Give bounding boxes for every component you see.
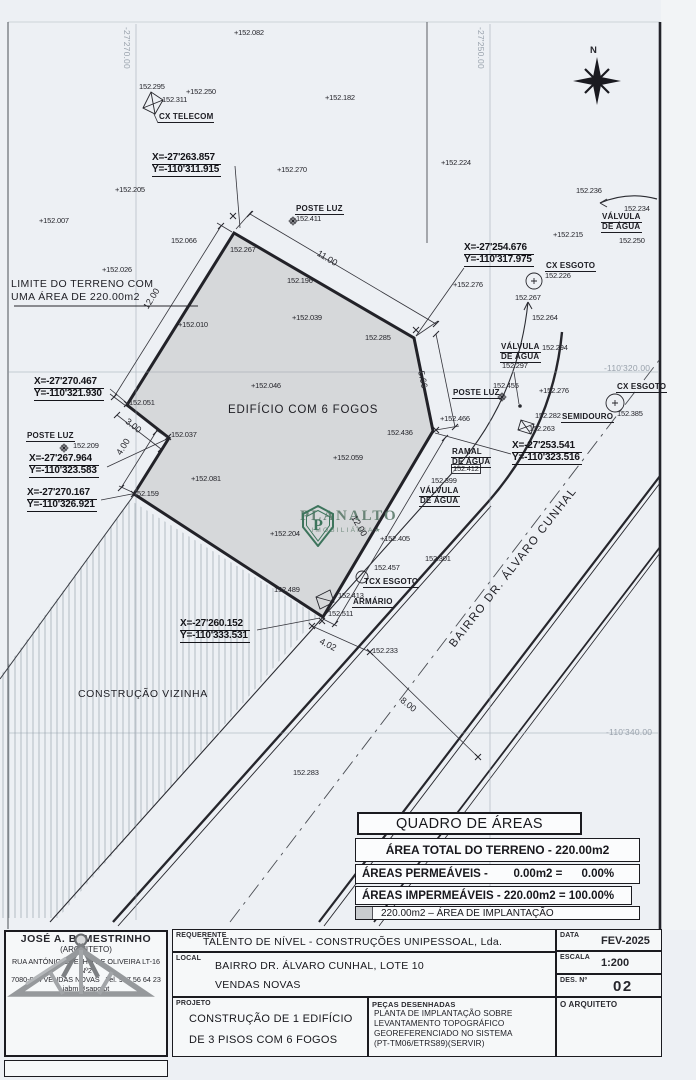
pecas-line1: PLANTA DE IMPLANTAÇÃO SOBRE: [374, 1009, 512, 1018]
pecas-label: PEÇAS DESENHADAS: [372, 1000, 456, 1009]
arquiteto-signature-box: O ARQUITETO: [556, 997, 662, 1057]
requerente-value: TALENTO DE NÍVEL - CONSTRUÇÕES UNIPESSOA…: [203, 936, 502, 948]
implantation-text: 220.00m2 – ÁREA DE IMPLANTAÇÃO: [381, 908, 554, 919]
projeto-line1: CONSTRUÇÃO DE 1 EDIFÍCIO: [189, 1013, 353, 1025]
semidouro-icon: [518, 420, 534, 434]
arquiteto-label: O ARQUITETO: [560, 1000, 617, 1009]
requerente-field: REQUERENTE TALENTO DE NÍVEL - CONSTRUÇÕE…: [172, 929, 556, 952]
architect-stamp-box: JOSÉ A. B. MESTRINHO (ARQUITETO) RUA ANT…: [4, 930, 168, 1057]
telecom-box-icon: [143, 92, 163, 114]
svg-text:P: P: [313, 517, 323, 534]
des-value: 02: [613, 978, 633, 995]
escala-label: ESCALA: [560, 954, 590, 961]
projeto-label: PROJETO: [176, 1000, 211, 1007]
north-compass-icon: [573, 57, 621, 105]
local-label: LOCAL: [176, 955, 201, 962]
site-plan-document: P PLANALTO IMOBILIÁRIA★ LIMITE DO TERREN…: [0, 0, 696, 1080]
data-label: DATA: [560, 932, 579, 939]
escala-value: 1:200: [601, 957, 629, 969]
areas-table-permeable-row: ÁREAS PERMEÁVEIS - 0.00m2 = 0.00%: [355, 864, 640, 884]
valve-point: [518, 404, 522, 408]
areas-table-implantation-row: 220.00m2 – ÁREA DE IMPLANTAÇÃO: [355, 906, 640, 920]
local-line1: BAIRRO DR. ÁLVARO CUNHAL, LOTE 10: [215, 960, 424, 972]
planalto-shield-icon: P: [300, 505, 336, 547]
areas-table-total-row: ÁREA TOTAL DO TERRENO - 220.00m2: [355, 838, 640, 862]
projeto-line2: DE 3 PISOS COM 6 FOGOS: [189, 1034, 337, 1046]
pecas-desenhadas-field: PEÇAS DESENHADAS PLANTA DE IMPLANTAÇÃO S…: [368, 997, 556, 1057]
pecas-line2: LEVANTAMENTO TOPOGRÁFICO: [374, 1019, 504, 1028]
roof-truss-logo: [6, 932, 156, 998]
stamp-strip: [4, 1060, 168, 1077]
data-value: FEV-2025: [601, 935, 650, 947]
projeto-field: PROJETO CONSTRUÇÃO DE 1 EDIFÍCIO DE 3 PI…: [172, 997, 368, 1057]
pecas-line3: GEOREFERENCIADO NO SISTEMA: [374, 1029, 513, 1038]
escala-field: ESCALA 1:200: [556, 951, 662, 974]
local-field: LOCAL BAIRRO DR. ÁLVARO CUNHAL, LOTE 10 …: [172, 952, 556, 997]
desenho-numero-field: DES. Nº 02: [556, 974, 662, 997]
des-label: DES. Nº: [560, 977, 587, 984]
pecas-line4: (PT-TM06/ETRS89)(SERVIR): [374, 1039, 485, 1048]
implantation-swatch: [356, 907, 373, 919]
areas-table-impermeable-row: ÁREAS IMPERMEÁVEIS - 220.00m2 = 100.00%: [355, 886, 632, 905]
areas-table-title: QUADRO DE ÁREAS: [357, 812, 582, 835]
local-line2: VENDAS NOVAS: [215, 979, 301, 991]
planalto-watermark: P PLANALTO IMOBILIÁRIA★: [300, 505, 394, 534]
data-field: DATA FEV-2025: [556, 929, 662, 951]
areas-table: QUADRO DE ÁREAS ÁREA TOTAL DO TERRENO - …: [355, 812, 647, 920]
